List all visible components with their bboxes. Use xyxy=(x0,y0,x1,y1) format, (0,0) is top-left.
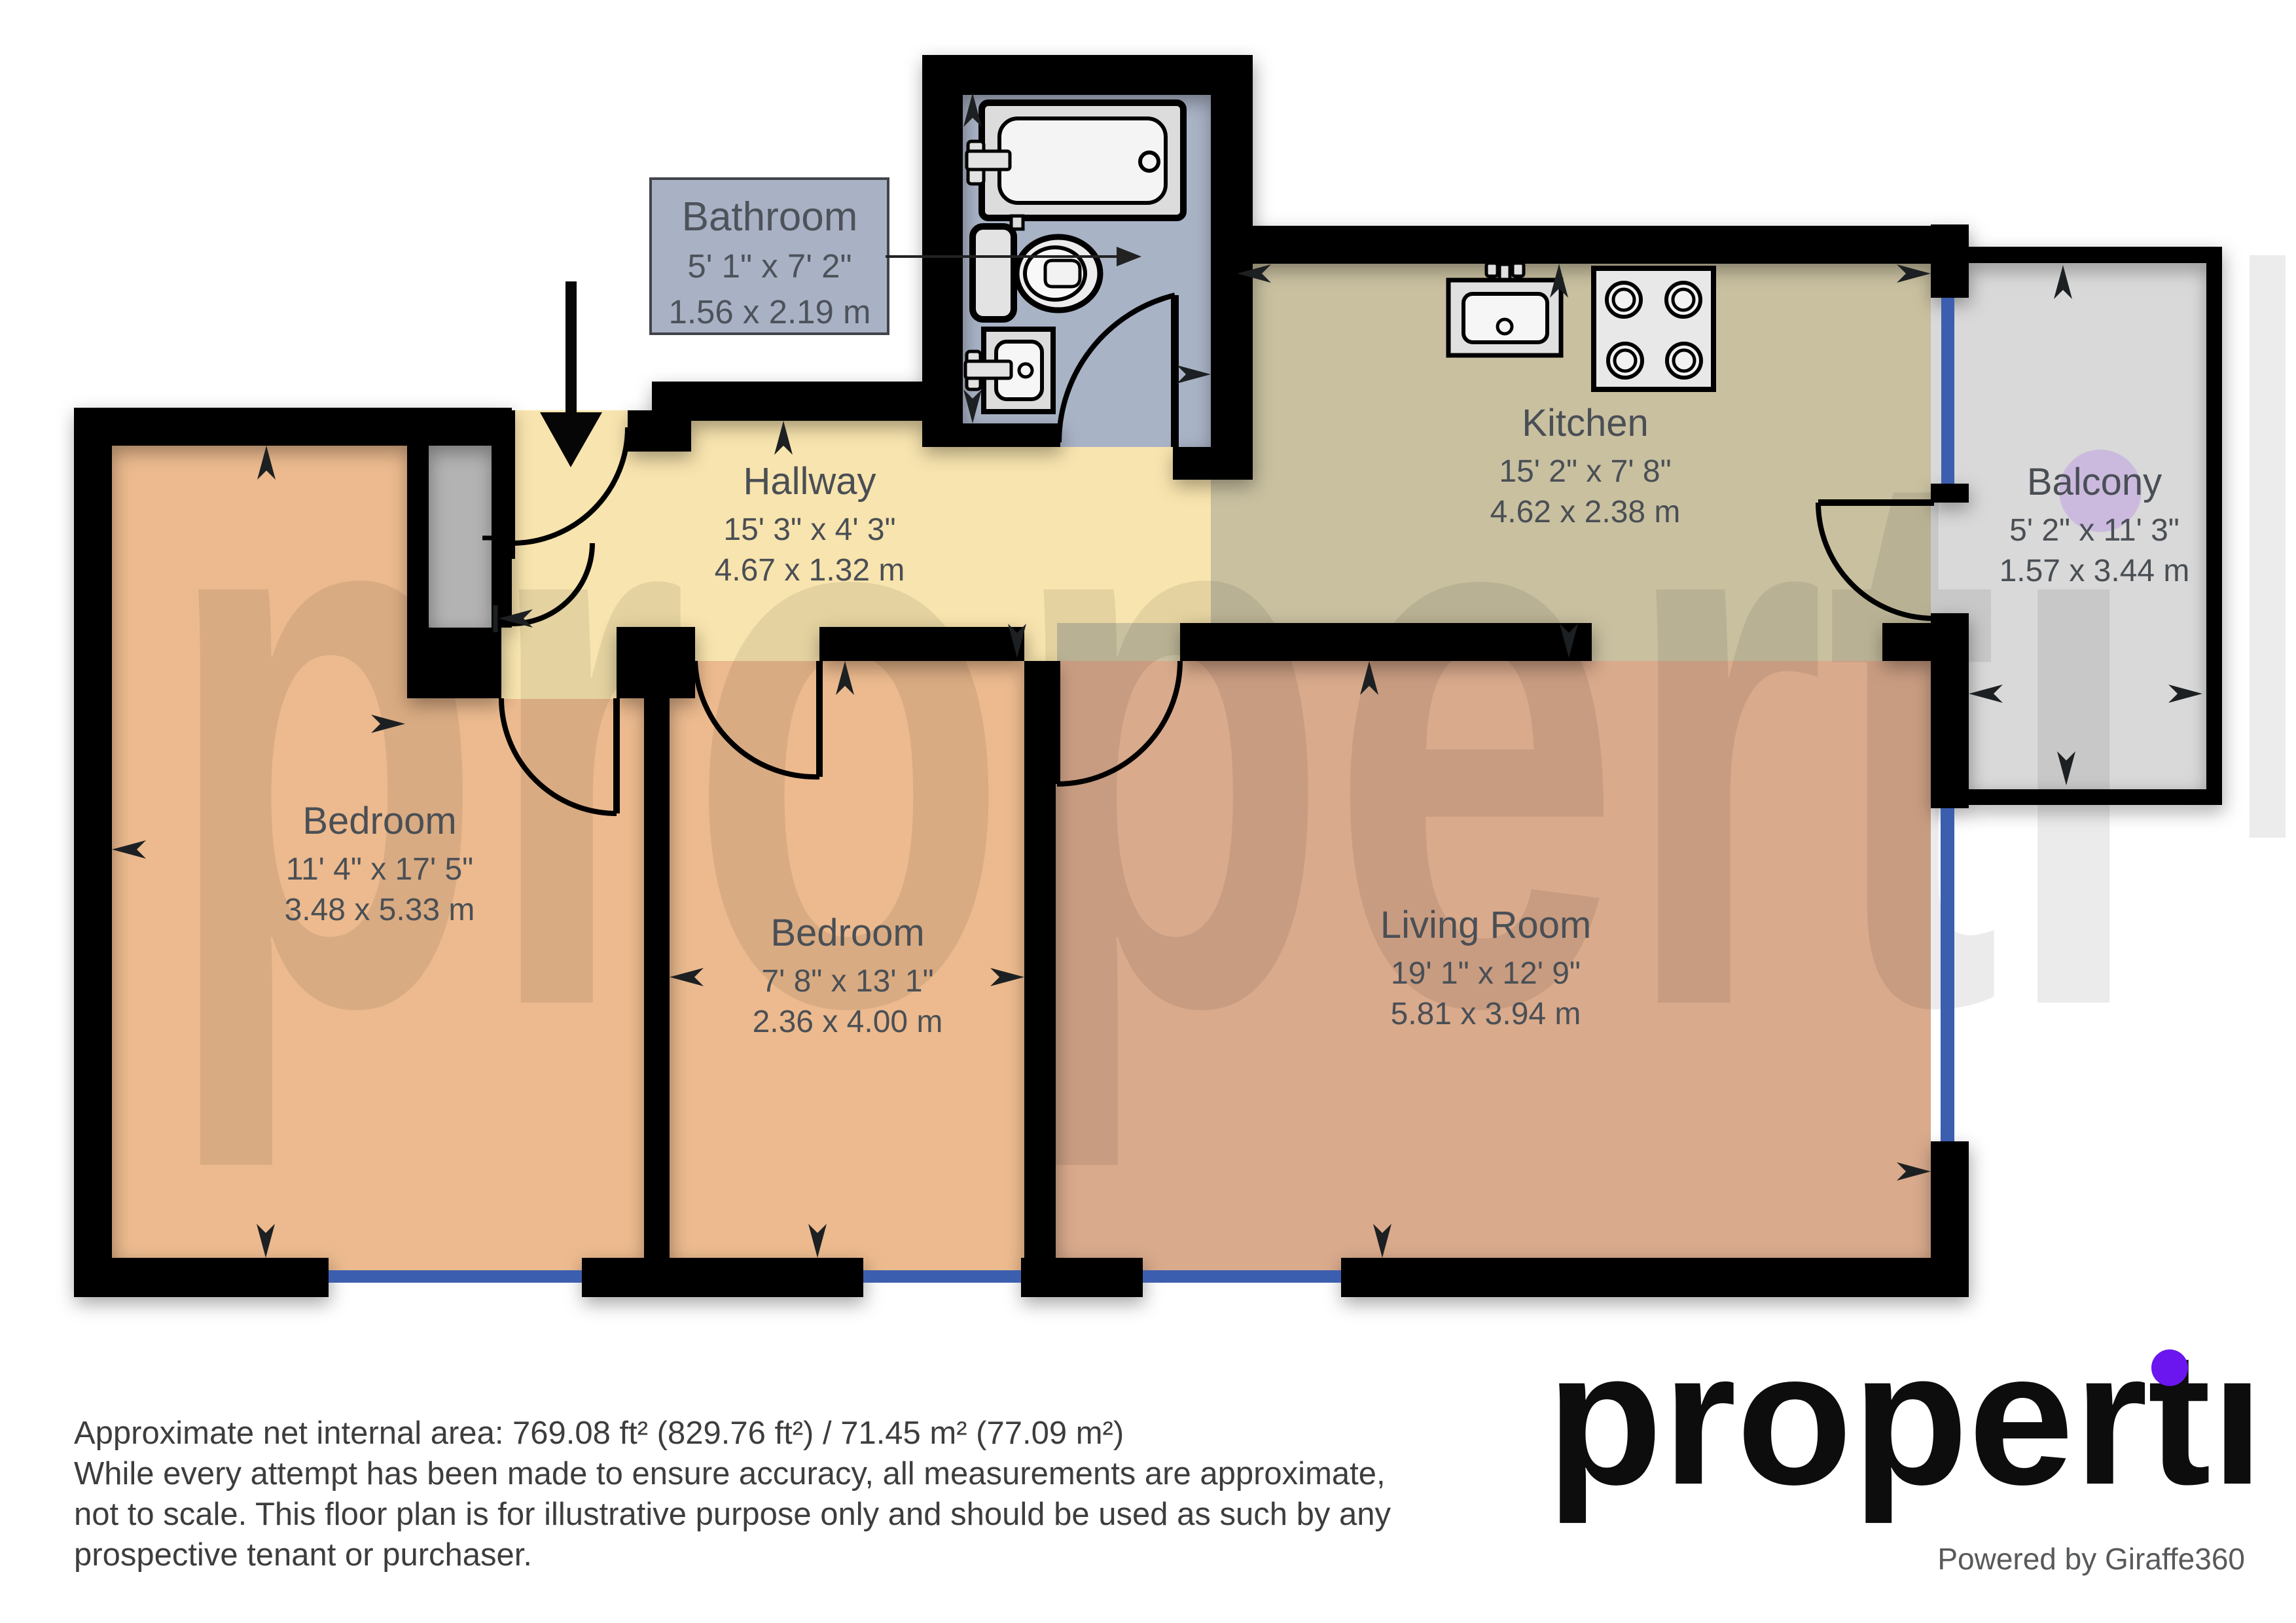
svg-text:Bedroom: Bedroom xyxy=(302,800,456,842)
svg-text:prospective tenant or purchase: prospective tenant or purchaser. xyxy=(74,1537,532,1573)
svg-text:5' 1" x 7' 2": 5' 1" x 7' 2" xyxy=(687,247,852,285)
svg-text:propertı: propertı xyxy=(1547,1312,2264,1525)
svg-text:not to scale. This floor plan: not to scale. This floor plan is for ill… xyxy=(74,1497,1391,1532)
svg-text:Hallway: Hallway xyxy=(743,460,876,503)
svg-text:15' 2" x 7' 8": 15' 2" x 7' 8" xyxy=(1499,454,1671,489)
svg-text:Kitchen: Kitchen xyxy=(1522,402,1648,444)
svg-text:15' 3" x 4' 3": 15' 3" x 4' 3" xyxy=(723,512,895,547)
svg-text:2.36 x 4.00 m: 2.36 x 4.00 m xyxy=(753,1005,943,1039)
svg-text:3.48 x 5.33 m: 3.48 x 5.33 m xyxy=(285,893,475,927)
svg-text:1.56 x 2.19 m: 1.56 x 2.19 m xyxy=(668,293,870,330)
svg-text:11' 4" x 17' 5": 11' 4" x 17' 5" xyxy=(286,852,473,887)
svg-text:Living Room: Living Room xyxy=(1380,904,1591,946)
svg-text:Bedroom: Bedroom xyxy=(770,912,924,954)
svg-text:1.57 x 3.44 m: 1.57 x 3.44 m xyxy=(2000,554,2190,588)
svg-text:19' 1" x 12' 9": 19' 1" x 12' 9" xyxy=(1391,956,1581,991)
svg-text:5.81 x 3.94 m: 5.81 x 3.94 m xyxy=(1391,997,1581,1031)
svg-text:Approximate net internal area:: Approximate net internal area: 769.08 ft… xyxy=(74,1416,1124,1451)
svg-text:Bathroom: Bathroom xyxy=(682,194,858,240)
svg-text:Powered by Giraffe360: Powered by Giraffe360 xyxy=(1937,1542,2245,1576)
svg-text:4.62 x 2.38 m: 4.62 x 2.38 m xyxy=(1490,495,1681,529)
svg-text:4.67 x 1.32 m: 4.67 x 1.32 m xyxy=(715,553,905,588)
svg-text:5' 2" x 11' 3": 5' 2" x 11' 3" xyxy=(2009,513,2179,548)
svg-text:Balcony: Balcony xyxy=(2027,461,2162,503)
svg-text:7' 8" x 13' 1": 7' 8" x 13' 1" xyxy=(761,964,933,999)
svg-text:While every attempt has been m: While every attempt has been made to ens… xyxy=(74,1456,1386,1491)
